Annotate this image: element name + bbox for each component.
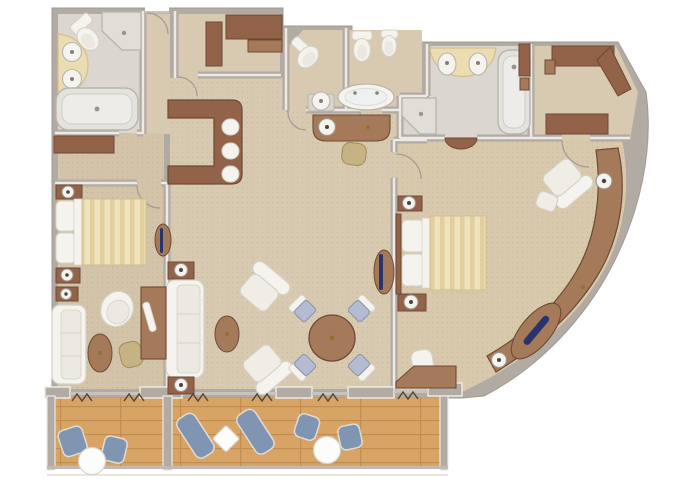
bar-stool-3 [222, 166, 239, 182]
shower2-drain [419, 112, 423, 116]
living-lamp-b-dot [179, 383, 183, 387]
bedroom1-sofa-cushions [61, 310, 81, 379]
counter-lamp-1-dot [602, 179, 606, 183]
master-pillow-1 [402, 220, 424, 252]
closet-room-wardrobe-b [206, 22, 222, 66]
bedroom1-pillow-1 [56, 201, 76, 231]
bathtub1-drain [95, 107, 100, 112]
bottom-wall-block-4 [348, 387, 394, 398]
master-headboard [396, 214, 401, 294]
bedroom1-lamp-top-dot [66, 190, 70, 194]
bedroom1-lamp-c-dot [64, 292, 67, 295]
bedroom1-lamp-bottom-dot [65, 273, 69, 277]
toilet3-seat [357, 45, 367, 60]
balcony-outer-rail [47, 466, 448, 469]
bath1-cabinet [54, 136, 114, 153]
balcony1-table [79, 448, 106, 475]
bedroom1-pillow-2 [56, 233, 76, 263]
balcony-rail-right [440, 396, 448, 470]
hall-vanity-mirror-dot [325, 125, 329, 129]
living-lamp-a-dot [179, 268, 183, 272]
powder2-basin-inner [345, 89, 387, 106]
bath2-sink-b-drain [476, 61, 480, 65]
bathtub2-drain [512, 65, 517, 70]
bath1-sink-b-drain [70, 77, 74, 81]
floor-plan-canvas [0, 0, 680, 486]
floor-plan [0, 0, 680, 486]
bar-stool-2 [222, 143, 239, 159]
hall-vanity-knob [366, 125, 370, 129]
hall-vanity-stool [341, 141, 368, 166]
living-tv-screen [379, 254, 383, 290]
balcony-outer-edge [47, 474, 448, 476]
bidet-seat [385, 41, 394, 55]
master-lamp-top-dot [407, 201, 411, 205]
walkin-wardrobe-cap [545, 60, 555, 74]
closet-room-shelf [248, 40, 282, 52]
dining-table-center [330, 336, 335, 341]
shower1-drain [122, 31, 126, 35]
bedroom1-duvet [82, 199, 146, 265]
bedroom1-coffee-table-knob [98, 351, 102, 355]
powder2-faucet-2 [375, 91, 379, 95]
master-duvet [430, 216, 486, 290]
master-pillow-2 [402, 254, 424, 286]
bar-stool-1 [222, 119, 239, 135]
counter-knob [581, 285, 585, 289]
balcony-rail-left [47, 396, 55, 470]
bath2-sink-a-drain [445, 61, 449, 65]
door-sill-3 [312, 392, 348, 395]
hall-floor [146, 14, 170, 134]
bath2-cabinet-b [520, 78, 529, 90]
living-tv-console [374, 250, 394, 294]
bottom-wall-block-3 [276, 387, 312, 398]
walkin-wardrobe-bottom [546, 114, 608, 134]
bedroom1-tv-screen [160, 228, 163, 253]
bath2-cabinet [519, 44, 530, 76]
counter-lamp-2-dot [497, 358, 501, 362]
balcony2-table [314, 437, 341, 464]
master-lamp-bottom-dot [409, 300, 413, 304]
closet-room-wardrobe-a [226, 15, 282, 39]
living-sofa-cushions [177, 285, 200, 373]
door-sill-4 [394, 390, 428, 393]
living-side-table-knob [225, 332, 229, 336]
bath1-sink-a-drain [70, 50, 74, 54]
powder1-sink-drain [319, 99, 323, 103]
balcony-divider [163, 396, 172, 470]
powder2-faucet-1 [353, 91, 357, 95]
